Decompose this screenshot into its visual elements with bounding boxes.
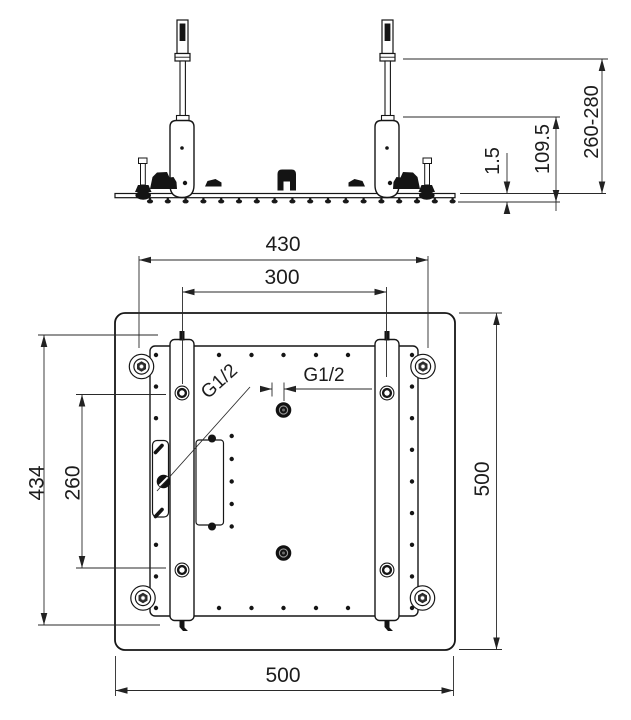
right-clip: [349, 179, 366, 187]
right-supply-pipe: [375, 20, 399, 198]
dim-install-range-label: 260-280: [581, 85, 603, 158]
side-ceiling-plate: [115, 194, 455, 198]
left-clip: [205, 179, 222, 187]
dim-side-right-label: 500: [471, 461, 494, 496]
left-supply-pipe: [170, 20, 194, 198]
center-clamp: [278, 170, 297, 191]
dim-plate-thickness-label: 1.5: [482, 147, 504, 175]
dim-width-top-label: 430: [265, 233, 300, 256]
dim-pipe-spacing-label: 300: [264, 266, 299, 289]
thread-center-label: G1/2: [303, 365, 344, 386]
dim-body-drop-label: 109.5: [532, 124, 554, 174]
side-view: [115, 20, 456, 203]
dim-side-bottom-label: 500: [265, 664, 300, 687]
technical-drawing: 1.5 109.5 260-280: [0, 0, 631, 720]
dim-hole-spacing-label: 260: [61, 465, 84, 500]
spray-nozzles: [147, 198, 456, 204]
drawing-page: 1.5 109.5 260-280: [0, 0, 631, 720]
dim-rail-length-label: 434: [25, 465, 48, 500]
side-dimensions: 1.5 109.5 260-280: [403, 59, 608, 211]
